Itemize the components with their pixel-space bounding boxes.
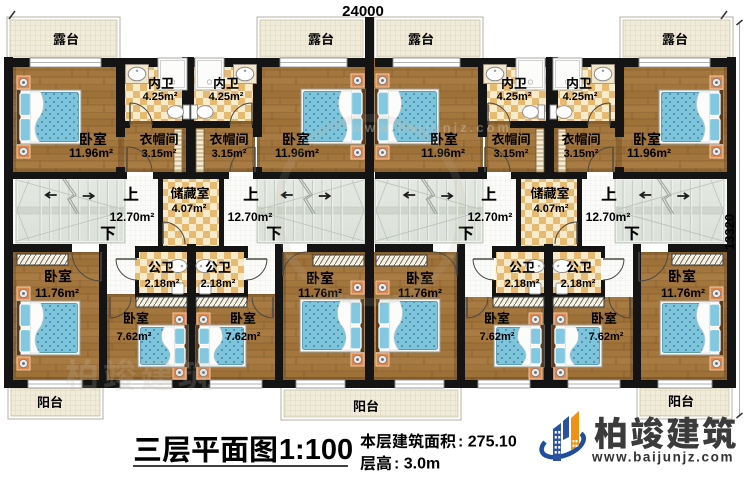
svg-text:24000: 24000: [342, 3, 384, 20]
svg-text:3.15m²: 3.15m²: [212, 148, 247, 160]
svg-text:7.62m²: 7.62m²: [117, 331, 152, 343]
svg-text:4.07m²: 4.07m²: [534, 203, 569, 215]
svg-text:www.baijunjz.com: www.baijunjz.com: [351, 120, 512, 135]
svg-text:12.70m²: 12.70m²: [586, 210, 631, 224]
svg-text:4.25m²: 4.25m²: [209, 91, 244, 103]
svg-text:12.70m²: 12.70m²: [468, 210, 513, 224]
svg-text:11.76m²: 11.76m²: [661, 286, 705, 300]
svg-text:2.18m²: 2.18m²: [145, 278, 180, 290]
svg-text:2.18m²: 2.18m²: [505, 278, 540, 290]
svg-text:7.62m²: 7.62m²: [226, 331, 261, 343]
svg-text:1:100: 1:100: [279, 434, 353, 466]
svg-text:: 3.0m: : 3.0m: [394, 456, 440, 473]
svg-text:3.15m²: 3.15m²: [564, 148, 599, 160]
svg-text:13320: 13320: [722, 214, 737, 250]
svg-text:7.62m²: 7.62m²: [480, 331, 515, 343]
svg-text:4.25m²: 4.25m²: [497, 91, 532, 103]
svg-text:4.07m²: 4.07m²: [172, 203, 207, 215]
svg-text:11.76m²: 11.76m²: [35, 286, 79, 300]
svg-text:: 275.10: : 275.10: [458, 434, 517, 451]
svg-text:4.25m²: 4.25m²: [563, 91, 598, 103]
svg-text:12.70m²: 12.70m²: [228, 210, 273, 224]
svg-text:4.25m²: 4.25m²: [143, 91, 178, 103]
svg-text:7.62m²: 7.62m²: [589, 331, 624, 343]
svg-text:2.18m²: 2.18m²: [201, 278, 236, 290]
svg-text:11.96m²: 11.96m²: [627, 146, 671, 160]
svg-text:12.70m²: 12.70m²: [110, 210, 155, 224]
svg-text:11.96m²: 11.96m²: [69, 146, 113, 160]
svg-text:2.18m²: 2.18m²: [561, 278, 596, 290]
svg-text:3.15m²: 3.15m²: [494, 148, 529, 160]
svg-text:3.15m²: 3.15m²: [142, 148, 177, 160]
svg-text:www.baijunjz.com: www.baijunjz.com: [591, 450, 734, 465]
